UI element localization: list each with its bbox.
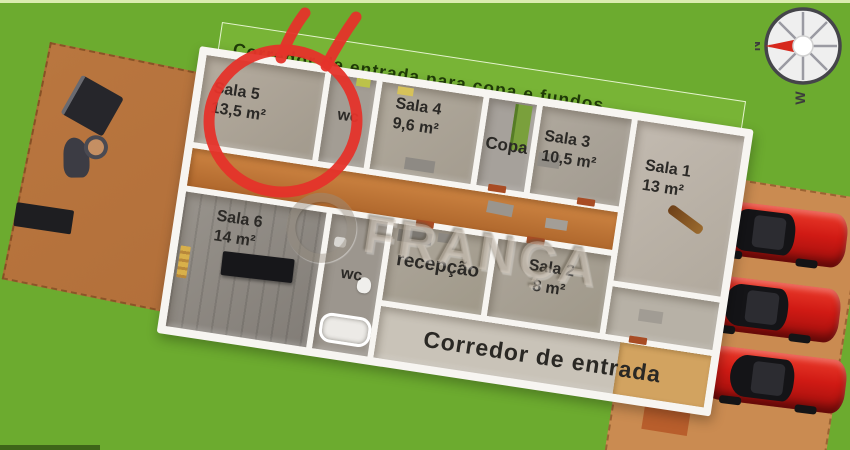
room-label: Sala 6 14 m² — [212, 207, 264, 253]
gray-mat — [545, 218, 568, 231]
reception-desk — [437, 233, 452, 244]
exercise-mat — [13, 202, 74, 234]
doormat — [488, 184, 507, 194]
room-sala-5: Sala 5 13,5 m² — [194, 55, 326, 160]
room-name: wc — [322, 261, 380, 289]
gray-mat — [404, 157, 435, 173]
reception-desk — [397, 229, 432, 246]
car-roof — [750, 361, 786, 397]
wood-object — [666, 204, 704, 236]
room-label: Sala 2 8 m² — [491, 251, 610, 308]
room-name: recepção — [387, 247, 489, 285]
room-name: wc — [324, 104, 372, 131]
floorplan-scene: Corredor de entrada para copa e fundos S… — [0, 0, 850, 450]
doormat — [356, 78, 371, 88]
room-sala-1: Sala 1 13 m² — [614, 120, 745, 296]
bottom-edge-artifact — [0, 445, 100, 450]
desk — [220, 251, 294, 283]
room-wc-top: wc — [318, 74, 377, 168]
sink — [334, 236, 347, 248]
gray-mat — [638, 309, 664, 324]
lounge-chair — [60, 75, 123, 137]
room-sala-4: Sala 4 9,6 m² — [370, 82, 484, 184]
corridor-junction — [606, 286, 720, 350]
compass-north-label: N — [755, 41, 763, 51]
compass-west-label: W — [792, 91, 808, 105]
ladder-shelf — [176, 245, 191, 278]
room-label: Sala 1 13 m² — [641, 156, 693, 202]
room-label: Sala 3 10,5 m² — [540, 127, 601, 175]
room-sala-6: Sala 6 14 m² — [166, 192, 327, 348]
doormat — [577, 197, 596, 207]
room-label: Sala 4 9,6 m² — [391, 94, 443, 140]
gray-mat — [486, 200, 514, 217]
room-sala-3: Sala 3 10,5 m² — [530, 106, 632, 206]
car-roof — [744, 290, 780, 326]
room-label: Sala 5 13,5 m² — [209, 79, 270, 127]
room-copa: Copa — [476, 98, 537, 192]
compass-rose-icon: N W E — [755, 0, 850, 110]
room-recepcao: recepção — [382, 223, 493, 315]
top-edge-highlight — [0, 0, 850, 3]
room-sala-2: Sala 2 8 m² — [487, 239, 611, 333]
bathtub — [317, 311, 373, 348]
car-roof — [751, 215, 787, 251]
